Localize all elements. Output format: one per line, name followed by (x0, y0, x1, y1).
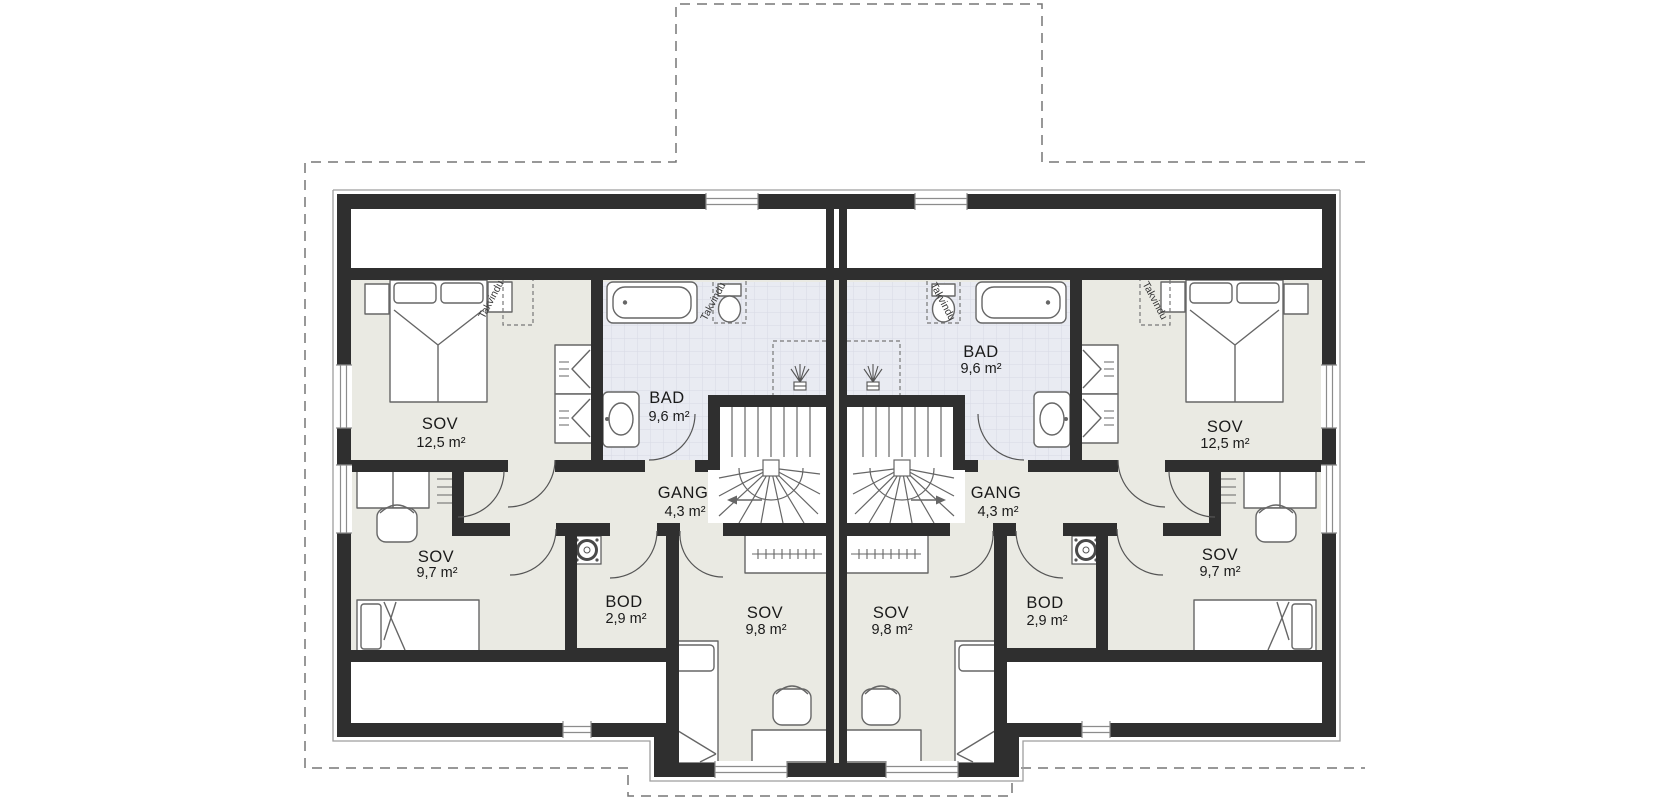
unit-right (837, 190, 1341, 781)
room-area-bad-left: 9,6 m² (648, 409, 689, 425)
room-area-sov-master-right: 12,5 m² (1200, 436, 1249, 452)
room-area-bod-right: 2,9 m² (1026, 613, 1067, 629)
room-label-bod-left: BOD (605, 593, 642, 611)
room-area-bod-left: 2,9 m² (605, 611, 646, 627)
room-label-sov-mid-right: SOV (1202, 546, 1238, 564)
room-label-sov-master-left: SOV (422, 415, 458, 433)
room-area-sov-small-left: 9,8 m² (745, 622, 786, 638)
room-area-sov-mid-left: 9,7 m² (416, 565, 457, 581)
room-label-gang-right: GANG (971, 484, 1022, 502)
room-area-sov-small-right: 9,8 m² (871, 622, 912, 638)
room-area-sov-master-left: 12,5 m² (416, 435, 465, 451)
room-label-sov-small-right: SOV (873, 604, 909, 622)
unit-left (333, 190, 837, 781)
floor-plan-drawing: SOV 12,5 m² BAD 9,6 m² GANG 4,3 m² SOV 9… (0, 0, 1670, 800)
room-area-gang-left: 4,3 m² (664, 504, 705, 520)
room-label-bad-left: BAD (649, 389, 684, 407)
room-label-sov-mid-left: SOV (418, 548, 454, 566)
room-label-sov-small-left: SOV (747, 604, 783, 622)
room-area-gang-right: 4,3 m² (977, 504, 1018, 520)
room-area-bad-right: 9,6 m² (960, 361, 1001, 377)
room-label-gang-left: GANG (658, 484, 709, 502)
room-area-sov-mid-right: 9,7 m² (1199, 564, 1240, 580)
room-label-bod-right: BOD (1026, 594, 1063, 612)
floor-plan-page: SOV 12,5 m² BAD 9,6 m² GANG 4,3 m² SOV 9… (0, 0, 1670, 800)
room-label-bad-right: BAD (963, 343, 998, 361)
room-label-sov-master-right: SOV (1207, 418, 1243, 436)
